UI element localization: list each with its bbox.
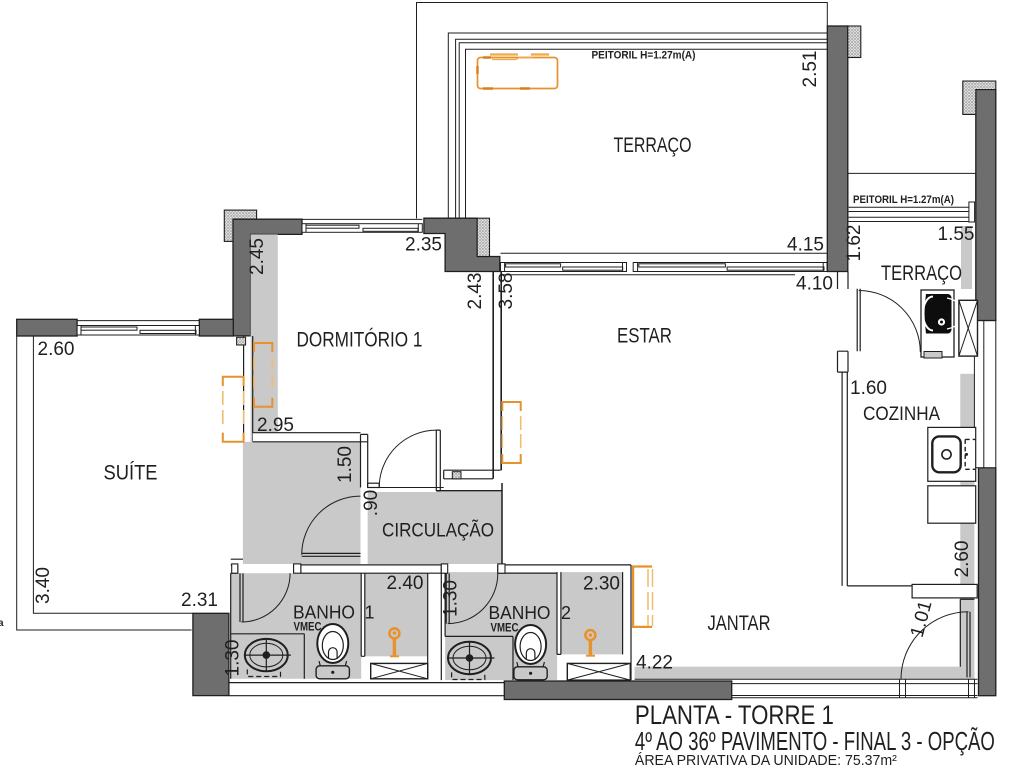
svg-text:2.35: 2.35 (405, 235, 442, 256)
svg-text:2.95: 2.95 (257, 415, 294, 436)
svg-text:2.45: 2.45 (247, 238, 268, 275)
svg-text:PEITORIL H=1.27m(A): PEITORIL H=1.27m(A) (853, 194, 954, 206)
svg-text:JANTAR: JANTAR (708, 612, 771, 635)
svg-text:4.15: 4.15 (787, 235, 824, 256)
svg-text:2: 2 (561, 603, 571, 623)
svg-text:1.30: 1.30 (441, 580, 462, 617)
svg-text:2.51: 2.51 (800, 51, 821, 88)
svg-text:1.50: 1.50 (335, 446, 356, 483)
svg-text:PEITORIL H=1.27m(A): PEITORIL H=1.27m(A) (592, 50, 696, 62)
svg-text:ÁREA PRIVATIVA DA UNIDADE: 75.: ÁREA PRIVATIVA DA UNIDADE: 75.37m² (635, 752, 897, 768)
svg-text:SUÍTE: SUÍTE (104, 462, 158, 485)
svg-text:1: 1 (364, 603, 374, 623)
svg-text:1.55: 1.55 (938, 224, 975, 245)
svg-text:BANHO: BANHO (489, 603, 551, 623)
svg-text:a: a (0, 618, 4, 629)
svg-text:4.22: 4.22 (636, 653, 673, 674)
svg-text:CIRCULAÇÃO: CIRCULAÇÃO (382, 520, 494, 542)
svg-text:2.31: 2.31 (181, 590, 218, 611)
svg-text:3.40: 3.40 (33, 567, 54, 604)
svg-text:DORMITÓRIO 1: DORMITÓRIO 1 (297, 329, 423, 352)
svg-text:1.60: 1.60 (850, 378, 887, 399)
svg-text:BANHO: BANHO (293, 603, 355, 623)
svg-text:ESTAR: ESTAR (617, 325, 672, 348)
svg-text:1.62: 1.62 (844, 225, 865, 262)
svg-text:COZINHA: COZINHA (863, 404, 940, 425)
svg-text:4.10: 4.10 (796, 274, 833, 295)
svg-text:2.30: 2.30 (583, 574, 620, 595)
svg-text:.90: .90 (361, 490, 382, 516)
svg-text:VMEC: VMEC (491, 623, 519, 635)
svg-text:VMEC: VMEC (294, 622, 322, 634)
svg-text:2.60: 2.60 (952, 541, 973, 578)
svg-text:2.40: 2.40 (387, 573, 424, 594)
svg-text:3.58: 3.58 (496, 273, 517, 310)
svg-text:2.60: 2.60 (38, 339, 75, 360)
svg-text:1.30: 1.30 (223, 640, 244, 677)
svg-text:4º AO 36º PAVIMENTO - FINAL 3: 4º AO 36º PAVIMENTO - FINAL 3 - OPÇÃO (635, 726, 995, 756)
svg-text:TERRAÇO: TERRAÇO (614, 134, 692, 157)
svg-text:2.43: 2.43 (465, 273, 486, 310)
svg-text:TERRAÇO: TERRAÇO (881, 262, 962, 285)
